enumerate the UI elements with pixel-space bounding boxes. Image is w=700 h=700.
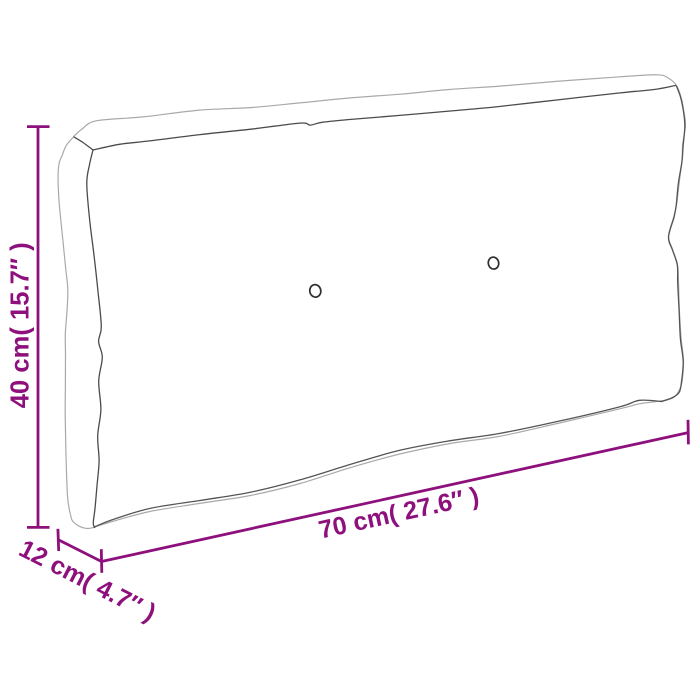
svg-text:70 cm( 27.6″ ): 70 cm( 27.6″ ) [316,482,481,544]
svg-text:40 cm( 15.7″ ): 40 cm( 15.7″ ) [7,242,35,408]
svg-text:12 cm( 4.7″ ): 12 cm( 4.7″ ) [14,535,160,628]
